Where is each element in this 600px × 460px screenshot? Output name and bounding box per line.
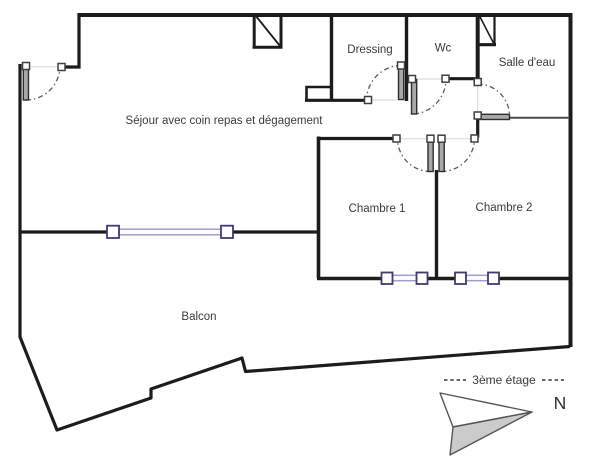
duct-shaft-icon (253, 13, 283, 47)
door-wc (409, 75, 450, 114)
room-label-salle-deau: Salle d'eau (499, 57, 556, 69)
door-entry (23, 63, 66, 101)
wall-duct-bump (307, 87, 331, 99)
wall-entry-corner (61, 13, 79, 67)
room-label-chambre-2: Chambre 2 (476, 202, 533, 214)
floor-plan-canvas: Séjour avec coin repas et dégagement Dre… (0, 0, 600, 460)
north-arrow-icon (440, 393, 532, 455)
floor-plan: Séjour avec coin repas et dégagement Dre… (0, 0, 600, 460)
window-chambre-2 (455, 273, 499, 285)
room-label-balcon: Balcon (181, 311, 216, 323)
door-salle-deau (474, 79, 509, 120)
walls (19, 13, 571, 430)
room-label-chambre-1: Chambre 1 (349, 203, 406, 215)
window-chambre-1 (382, 273, 428, 285)
floor-label-text: 3ème étage (472, 373, 536, 387)
room-label-dressing: Dressing (347, 44, 392, 56)
window-balcon (107, 226, 233, 238)
door-dressing (365, 62, 405, 104)
door-chambre-2 (438, 135, 478, 172)
north-label: N (554, 393, 567, 413)
room-label-wc: Wc (435, 43, 452, 55)
room-label-sejour: Séjour avec coin repas et dégagement (126, 115, 324, 127)
duct-shaft-icon (477, 13, 496, 45)
door-chambre-1 (393, 135, 434, 172)
floor-label: 3ème étage (444, 373, 564, 387)
